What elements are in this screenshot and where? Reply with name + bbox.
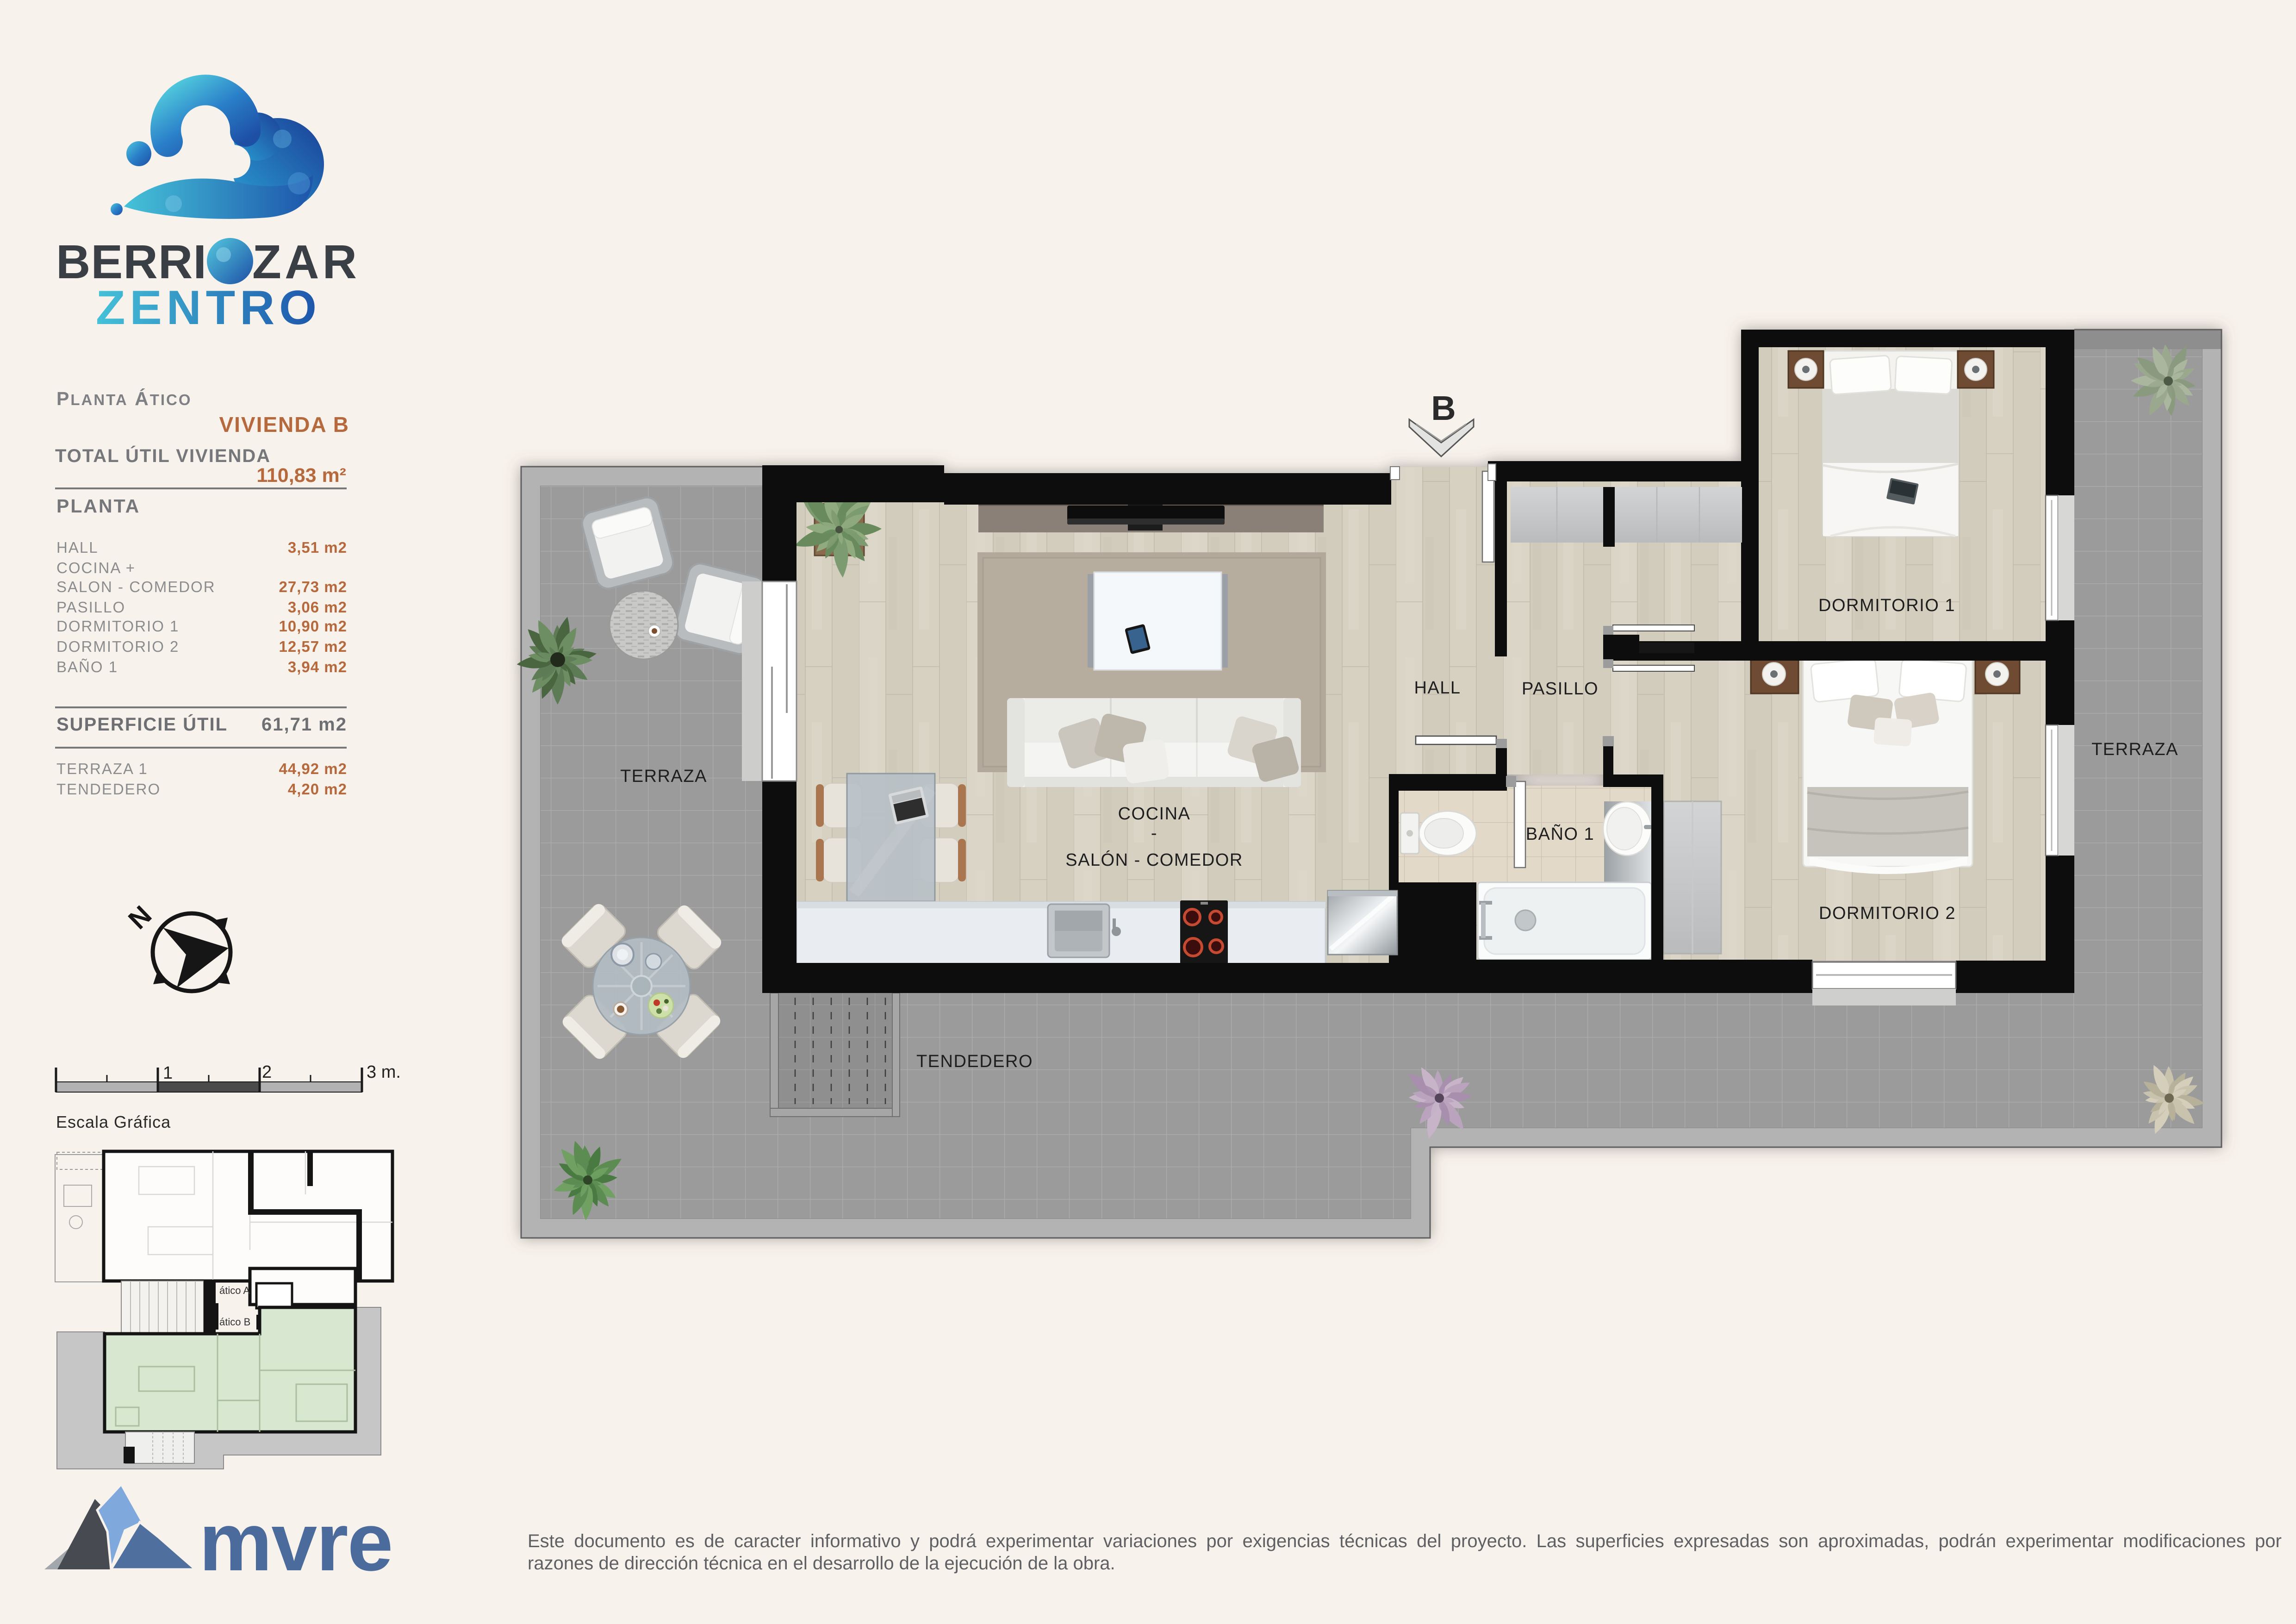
- svg-text:Escala Gráfica: Escala Gráfica: [56, 1112, 171, 1131]
- svg-text:-: -: [1151, 824, 1157, 843]
- svg-text:COCINA: COCINA: [1118, 804, 1191, 824]
- svg-text:ático A: ático A: [219, 1285, 250, 1296]
- svg-text:TERRAZA: TERRAZA: [620, 767, 707, 786]
- svg-text:1: 1: [163, 1063, 173, 1083]
- svg-text:HALL: HALL: [1414, 678, 1461, 698]
- svg-text:BAÑO 1: BAÑO 1: [1526, 824, 1594, 844]
- svg-text:TENDEDERO: TENDEDERO: [916, 1052, 1033, 1071]
- svg-text:ático B: ático B: [219, 1316, 250, 1328]
- svg-text:TERRAZA: TERRAZA: [2091, 740, 2178, 759]
- svg-text:SALÓN - COMEDOR: SALÓN - COMEDOR: [1065, 850, 1243, 870]
- svg-text:DORMITORIO 1: DORMITORIO 1: [1818, 596, 1955, 615]
- svg-text:DORMITORIO 2: DORMITORIO 2: [1819, 904, 1956, 923]
- svg-text:3 m.: 3 m.: [367, 1062, 401, 1082]
- svg-text:PASILLO: PASILLO: [1522, 679, 1599, 699]
- svg-text:N: N: [123, 900, 157, 935]
- svg-text:2: 2: [262, 1062, 272, 1082]
- svg-text:B: B: [1431, 389, 1456, 427]
